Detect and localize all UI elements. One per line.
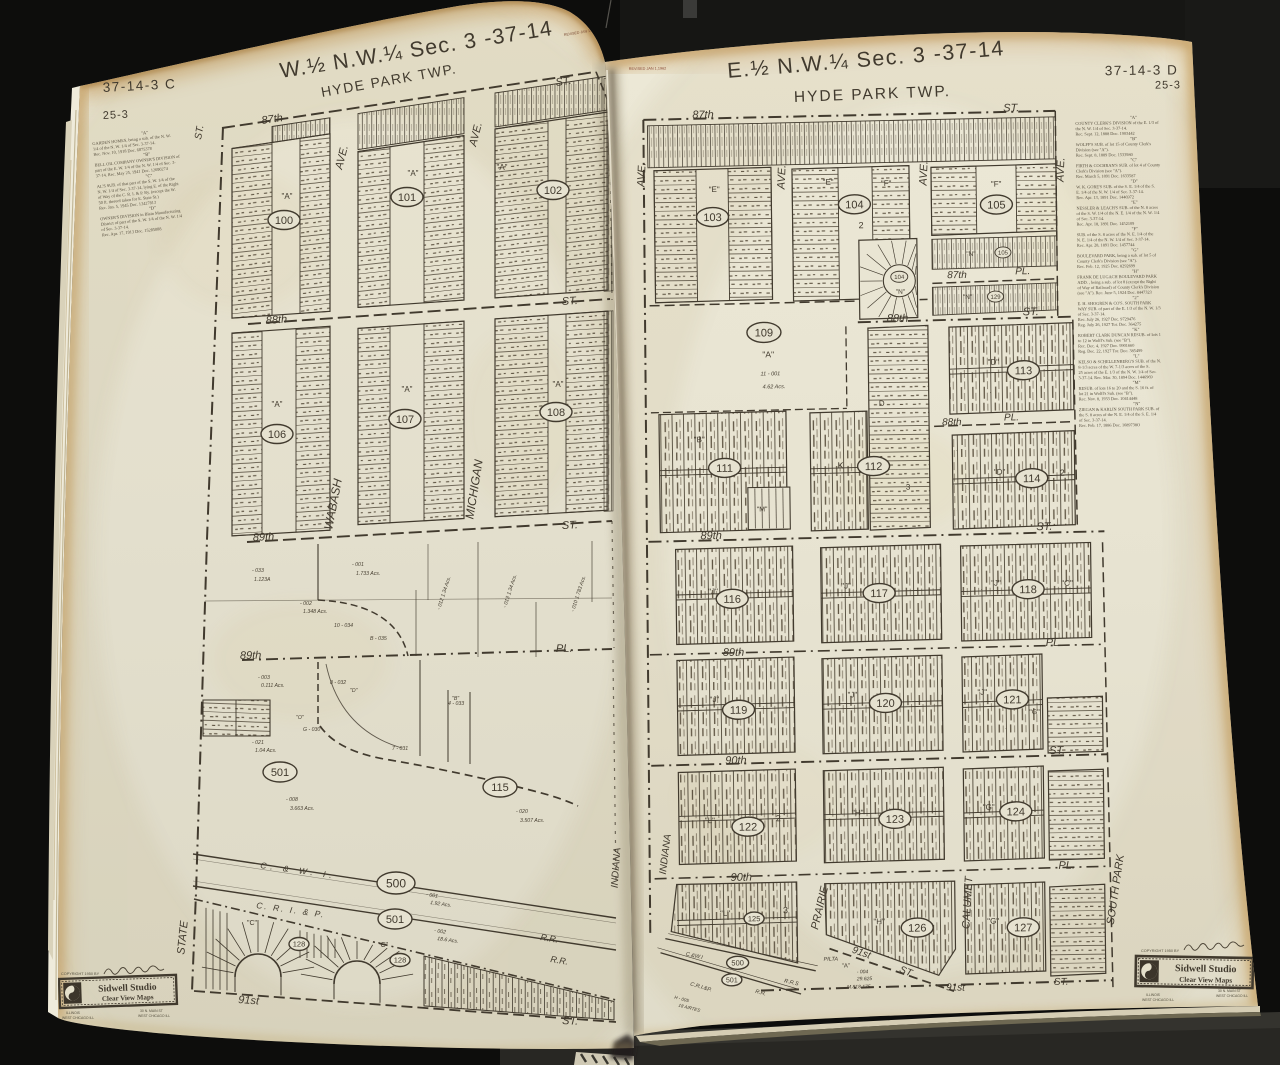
svg-text:120: 120 xyxy=(876,698,895,710)
svg-text:WEST CHICAGO ILL: WEST CHICAGO ILL xyxy=(62,1016,94,1020)
svg-text:REVISED JAN 1,1962: REVISED JAN 1,1962 xyxy=(629,67,667,71)
svg-text:"F": "F" xyxy=(881,179,892,188)
svg-text:PL.: PL. xyxy=(1004,412,1019,423)
svg-text:"A": "A" xyxy=(281,192,292,201)
svg-text:COPYRIGHT 1950 BY: COPYRIGHT 1950 BY xyxy=(1141,949,1180,953)
svg-text:"D": "D" xyxy=(994,467,1006,476)
svg-text:89th: 89th xyxy=(723,647,745,659)
svg-text:ST.: ST. xyxy=(561,295,578,308)
svg-text:87th: 87th xyxy=(947,270,967,281)
svg-text:- 004: - 004 xyxy=(857,969,869,975)
svg-text:3: 3 xyxy=(906,483,911,492)
svg-text:"A": "A" xyxy=(496,163,507,172)
svg-text:501: 501 xyxy=(726,977,738,984)
svg-text:ST.: ST. xyxy=(1023,306,1039,318)
svg-text:"K": "K" xyxy=(1132,327,1139,332)
svg-text:118: 118 xyxy=(1019,584,1037,596)
svg-text:101: 101 xyxy=(398,192,416,204)
svg-text:"L": "L" xyxy=(1133,353,1140,358)
svg-text:"H": "H" xyxy=(852,808,864,817)
svg-text:- 033: - 033 xyxy=(252,568,264,574)
svg-text:113: 113 xyxy=(1015,365,1033,377)
svg-text:D: D xyxy=(879,399,885,408)
svg-text:"N": "N" xyxy=(963,294,973,301)
svg-text:"H": "H" xyxy=(873,917,885,926)
svg-text:"A": "A" xyxy=(401,385,412,394)
svg-text:PILTA: PILTA xyxy=(824,957,839,963)
svg-text:ILLINOIS: ILLINOIS xyxy=(66,1011,81,1015)
svg-text:108: 108 xyxy=(547,407,565,419)
svg-text:0.111 Acs.: 0.111 Acs. xyxy=(261,683,285,689)
svg-text:"A": "A" xyxy=(552,380,563,389)
svg-text:- 003: - 003 xyxy=(258,675,270,681)
svg-text:- 008: - 008 xyxy=(286,797,298,803)
svg-text:Sidwell Studio: Sidwell Studio xyxy=(1175,963,1237,975)
svg-text:"F": "F" xyxy=(1132,226,1138,231)
svg-text:2: 2 xyxy=(776,813,781,823)
svg-text:"D": "D" xyxy=(988,358,1000,367)
svg-text:"A": "A" xyxy=(842,963,850,969)
svg-text:ST.: ST. xyxy=(1036,521,1052,533)
svg-text:103: 103 xyxy=(703,212,722,224)
svg-text:ST.: ST. xyxy=(1049,745,1065,757)
svg-text:ST.: ST. xyxy=(1054,977,1069,988)
svg-text:AVE.: AVE. xyxy=(635,162,648,188)
svg-text:126: 126 xyxy=(908,922,927,934)
svg-text:AVE.: AVE. xyxy=(776,165,789,191)
svg-text:1.04 Acs.: 1.04 Acs. xyxy=(255,748,276,754)
svg-text:ST.: ST. xyxy=(555,75,573,89)
svg-text:106: 106 xyxy=(268,429,286,441)
svg-text:"G": "G" xyxy=(1131,247,1138,252)
svg-text:- 020: - 020 xyxy=(516,809,528,815)
svg-text:7 - 031: 7 - 031 xyxy=(392,746,408,752)
svg-text:2: 2 xyxy=(859,220,864,230)
svg-text:"E": "E" xyxy=(823,178,834,187)
svg-text:4.62 Acs.: 4.62 Acs. xyxy=(763,384,786,390)
svg-text:"J": "J" xyxy=(708,587,718,596)
svg-text:1.123A: 1.123A xyxy=(254,577,271,583)
svg-text:"B": "B" xyxy=(1130,136,1137,141)
svg-text:"A": "A" xyxy=(1130,115,1137,120)
svg-text:25-3: 25-3 xyxy=(103,109,130,122)
svg-text:104: 104 xyxy=(845,199,864,211)
svg-text:"J": "J" xyxy=(977,688,987,697)
svg-text:ILLINOIS: ILLINOIS xyxy=(1146,993,1161,997)
svg-text:"B": "B" xyxy=(694,435,705,444)
svg-text:WEST CHICAGO ILL: WEST CHICAGO ILL xyxy=(1142,998,1174,1002)
svg-text:- 001: - 001 xyxy=(352,562,364,568)
svg-text:501: 501 xyxy=(271,767,289,779)
svg-text:2: 2 xyxy=(1060,468,1065,478)
svg-text:128: 128 xyxy=(293,940,306,949)
svg-text:"J": "J" xyxy=(847,690,857,699)
svg-text:104: 104 xyxy=(894,275,905,281)
svg-text:122: 122 xyxy=(739,822,758,834)
svg-text:30 N. MAIN ST: 30 N. MAIN ST xyxy=(140,1009,163,1013)
svg-text:88th: 88th xyxy=(942,417,962,428)
svg-text:AVE.: AVE. xyxy=(1054,157,1067,183)
svg-text:90th: 90th xyxy=(725,755,747,767)
svg-text:90th: 90th xyxy=(731,872,753,884)
svg-text:124: 124 xyxy=(1007,806,1026,818)
svg-text:PL.: PL. xyxy=(1015,266,1030,277)
svg-text:WOLFF'S SUB. of lot 15 of Cou: WOLFF'S SUB. of lot 15 of County Clerk's xyxy=(1076,141,1152,147)
svg-text:"B": "B" xyxy=(452,696,460,702)
svg-text:"2": "2" xyxy=(1132,295,1138,300)
svg-text:117: 117 xyxy=(870,588,888,600)
svg-text:PL.: PL. xyxy=(1046,637,1063,649)
svg-text:129: 129 xyxy=(990,295,1001,301)
svg-text:"N": "N" xyxy=(1133,401,1140,406)
svg-text:109: 109 xyxy=(755,327,774,339)
svg-text:"J": "J" xyxy=(841,581,851,590)
svg-text:"N": "N" xyxy=(896,289,906,296)
svg-text:B - 035: B - 035 xyxy=(370,636,387,642)
svg-text:"L": "L" xyxy=(705,816,715,825)
svg-text:G - 030: G - 030 xyxy=(303,727,320,733)
svg-text:88th: 88th xyxy=(265,314,287,327)
svg-text:100: 100 xyxy=(275,215,293,227)
svg-text:3.663 Acs.: 3.663 Acs. xyxy=(290,806,314,812)
svg-text:Clear View Maps: Clear View Maps xyxy=(1179,976,1232,985)
svg-text:89th: 89th xyxy=(700,530,722,542)
svg-text:of the S. W. 1/4 of the N. E.: of the S. W. 1/4 of the N. E. 1/4 of the… xyxy=(1076,210,1160,216)
svg-text:11 - 001: 11 - 001 xyxy=(760,371,780,377)
svg-text:"A": "A" xyxy=(407,169,418,178)
svg-text:PL.: PL. xyxy=(1058,860,1075,872)
svg-text:"J": "J" xyxy=(710,695,720,704)
svg-text:1.733 Acs.: 1.733 Acs. xyxy=(356,571,380,577)
svg-text:"N": "N" xyxy=(966,251,976,258)
svg-text:"D": "D" xyxy=(350,688,359,694)
svg-text:WAY SUB. of part of the E. 1/: WAY SUB. of part of the E. 1/3 of the N.… xyxy=(1078,305,1161,311)
svg-text:119: 119 xyxy=(730,705,748,717)
svg-text:111: 111 xyxy=(716,463,733,475)
svg-text:"C": "C" xyxy=(247,920,258,927)
svg-text:500: 500 xyxy=(731,958,744,967)
svg-text:88th: 88th xyxy=(887,313,909,325)
svg-text:89th: 89th xyxy=(253,531,275,544)
svg-text:K: K xyxy=(838,460,844,470)
svg-text:3.507 Acs.: 3.507 Acs. xyxy=(520,818,544,824)
svg-text:3: 3 xyxy=(783,905,788,915)
svg-text:"G": "G" xyxy=(983,803,995,812)
svg-text:89th: 89th xyxy=(240,650,262,662)
svg-text:"J": "J" xyxy=(991,579,1001,588)
svg-text:"L": "L" xyxy=(720,909,730,918)
svg-text:121: 121 xyxy=(1003,694,1022,706)
svg-text:PL.: PL. xyxy=(556,643,573,655)
svg-text:125: 125 xyxy=(748,914,761,923)
svg-text:"G": "G" xyxy=(987,917,999,926)
svg-text:COPYRIGHT 1950 BY: COPYRIGHT 1950 BY xyxy=(61,972,100,976)
svg-text:"F": "F" xyxy=(991,179,1002,188)
svg-text:25-3: 25-3 xyxy=(1155,79,1181,91)
svg-text:37-14-3 D: 37-14-3 D xyxy=(1105,62,1179,78)
svg-text:the S. 8 acres of the N. E. 1/: the S. 8 acres of the N. E. 1/4 of the S… xyxy=(1079,411,1157,417)
svg-text:30 N. MAIN ST: 30 N. MAIN ST xyxy=(1218,989,1241,993)
svg-text:WEST CHICAGO ILL: WEST CHICAGO ILL xyxy=(1216,994,1248,998)
svg-text:"E": "E" xyxy=(1131,200,1138,205)
svg-text:107: 107 xyxy=(396,414,414,426)
svg-text:29.625: 29.625 xyxy=(856,976,873,982)
svg-text:"E": "E" xyxy=(709,185,720,194)
svg-text:M.818.175: M.818.175 xyxy=(847,984,871,990)
svg-text:"M": "M" xyxy=(757,506,768,513)
svg-text:"A": "A" xyxy=(762,349,774,359)
svg-text:112: 112 xyxy=(865,461,883,473)
svg-text:ST.: ST. xyxy=(1003,102,1019,114)
svg-text:- 002: - 002 xyxy=(300,601,312,607)
svg-text:127: 127 xyxy=(1014,922,1033,934)
svg-text:WEST CHICAGO ILL: WEST CHICAGO ILL xyxy=(138,1014,170,1018)
svg-text:AVE.: AVE. xyxy=(917,161,930,187)
svg-text:10 - 034: 10 - 034 xyxy=(334,623,353,629)
svg-text:"A": "A" xyxy=(271,400,282,409)
svg-text:"H": "H" xyxy=(1132,269,1139,274)
svg-text:91st: 91st xyxy=(238,994,261,1007)
svg-text:ST.: ST. xyxy=(562,1015,579,1028)
svg-text:128: 128 xyxy=(394,956,407,965)
svg-text:500: 500 xyxy=(386,876,406,890)
svg-text:114: 114 xyxy=(1023,473,1041,485)
svg-text:115: 115 xyxy=(491,782,509,794)
svg-text:"C": "C" xyxy=(378,942,389,949)
svg-text:501: 501 xyxy=(386,914,404,926)
svg-text:123: 123 xyxy=(886,814,905,826)
svg-text:116: 116 xyxy=(723,594,741,606)
svg-text:91st: 91st xyxy=(946,982,966,993)
svg-text:1.348 Acs.: 1.348 Acs. xyxy=(303,609,327,615)
svg-text:ST.: ST. xyxy=(562,519,579,532)
svg-text:102: 102 xyxy=(544,185,562,197)
svg-text:"C": "C" xyxy=(1061,579,1073,588)
svg-text:"O": "O" xyxy=(296,715,305,721)
svg-text:"G": "G" xyxy=(1029,709,1040,716)
svg-text:87th: 87th xyxy=(692,109,714,121)
svg-text:105: 105 xyxy=(987,199,1006,211)
svg-text:- 021: - 021 xyxy=(252,740,264,746)
svg-text:8 - 032: 8 - 032 xyxy=(330,680,346,686)
svg-text:105: 105 xyxy=(998,251,1009,257)
